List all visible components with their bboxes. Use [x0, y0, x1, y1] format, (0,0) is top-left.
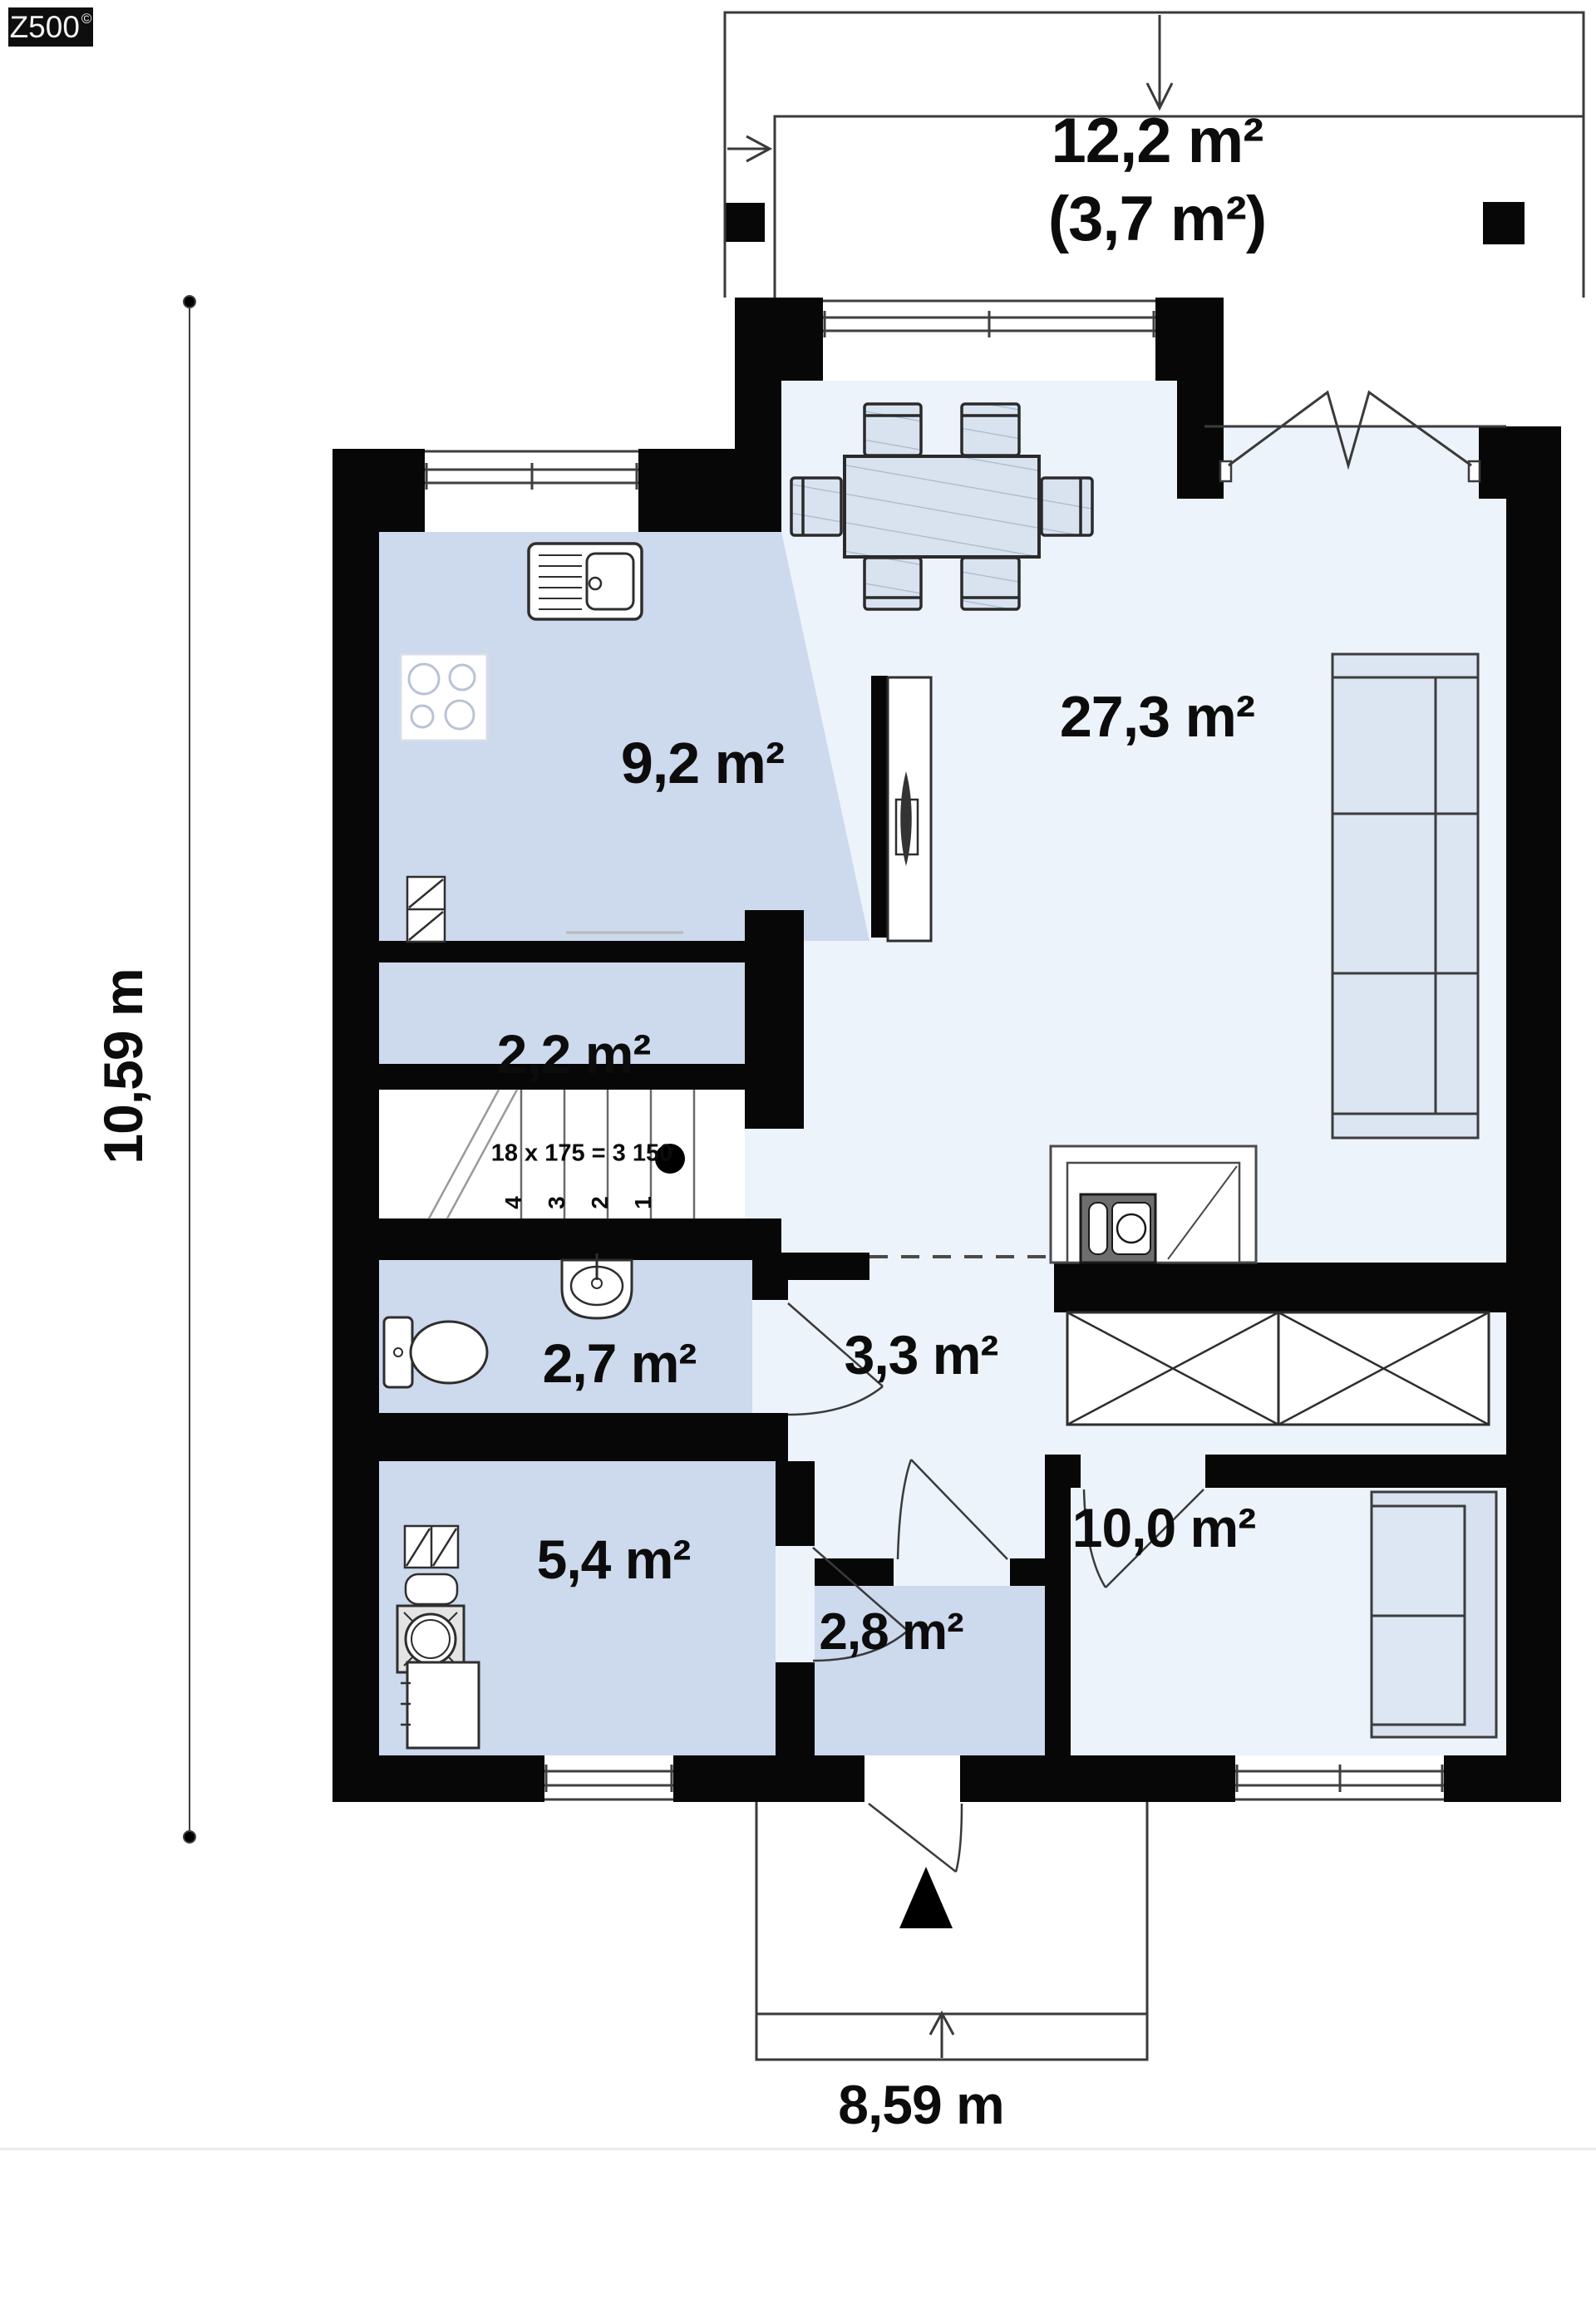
toilet-icon [384, 1317, 487, 1387]
porch-outline [756, 1802, 1147, 2060]
stairs-annotation: 18 x 175 = 3 150 [491, 1142, 673, 1166]
entrance-triangle-icon [899, 1867, 953, 1928]
z500-logo: Z500© [8, 7, 93, 47]
dimension-line-vertical [184, 296, 195, 1843]
room-label-hall: 3,3 m² [845, 1327, 998, 1382]
dining-table-icon [845, 456, 1039, 557]
floor-plan: Z500© 12,2 m² (3,7 m²) 9,2 m² 27,3 m² 2,… [0, 0, 1596, 2299]
room-label-pantry: 2,2 m² [497, 1026, 651, 1081]
room-label-vestibule: 2,8 m² [819, 1607, 963, 1658]
terrace-door [1204, 392, 1506, 481]
room-label-living: 27,3 m² [1060, 687, 1254, 746]
plan-linework [0, 0, 1596, 2299]
stair-step-number-2: 2 [589, 1196, 612, 1209]
boiler-icon [401, 1662, 479, 1748]
logo-text: Z500 [10, 10, 80, 45]
window-utility [544, 1765, 673, 1799]
bathroom-sink-icon [562, 1253, 632, 1318]
window-dining [823, 301, 1155, 337]
kitchen-sink-icon [529, 544, 642, 619]
utility-electrical-box-icon [405, 1526, 458, 1568]
terrace-area-sublabel: (3,7 m²) [1048, 188, 1266, 251]
door-vestibule [898, 1460, 1007, 1559]
room-label-kitchen: 9,2 m² [621, 734, 784, 792]
kitchen-hob-icon [401, 654, 487, 741]
dimension-width-label: 8,59 m [838, 2077, 1003, 2132]
bed-icon [1372, 1492, 1496, 1737]
window-bedroom [1235, 1765, 1444, 1799]
wardrobe-icon [1067, 1312, 1489, 1425]
stair-step-number-3: 3 [545, 1196, 569, 1209]
door-entry [869, 1804, 962, 1872]
tv-cabinet-icon [888, 677, 931, 941]
dimension-height-label: 10,59 m [96, 968, 150, 1164]
stair-step-number-4: 4 [502, 1196, 525, 1209]
window-kitchen [425, 451, 638, 490]
sofa-icon [1332, 654, 1478, 1138]
room-label-utility: 5,4 m² [537, 1532, 691, 1587]
stair-step-number-1: 1 [632, 1196, 655, 1209]
room-label-bathroom: 2,7 m² [543, 1336, 697, 1391]
page-artifact-line [0, 2148, 1596, 2150]
utility-tray-icon [406, 1574, 457, 1604]
logo-copyright-mark: © [81, 11, 92, 27]
room-label-bedroom: 10,0 m² [1072, 1500, 1255, 1555]
kitchen-fridge-icon [407, 877, 445, 942]
terrace-area-label: 12,2 m² [1052, 110, 1263, 173]
fireplace-icon [1051, 1146, 1256, 1263]
